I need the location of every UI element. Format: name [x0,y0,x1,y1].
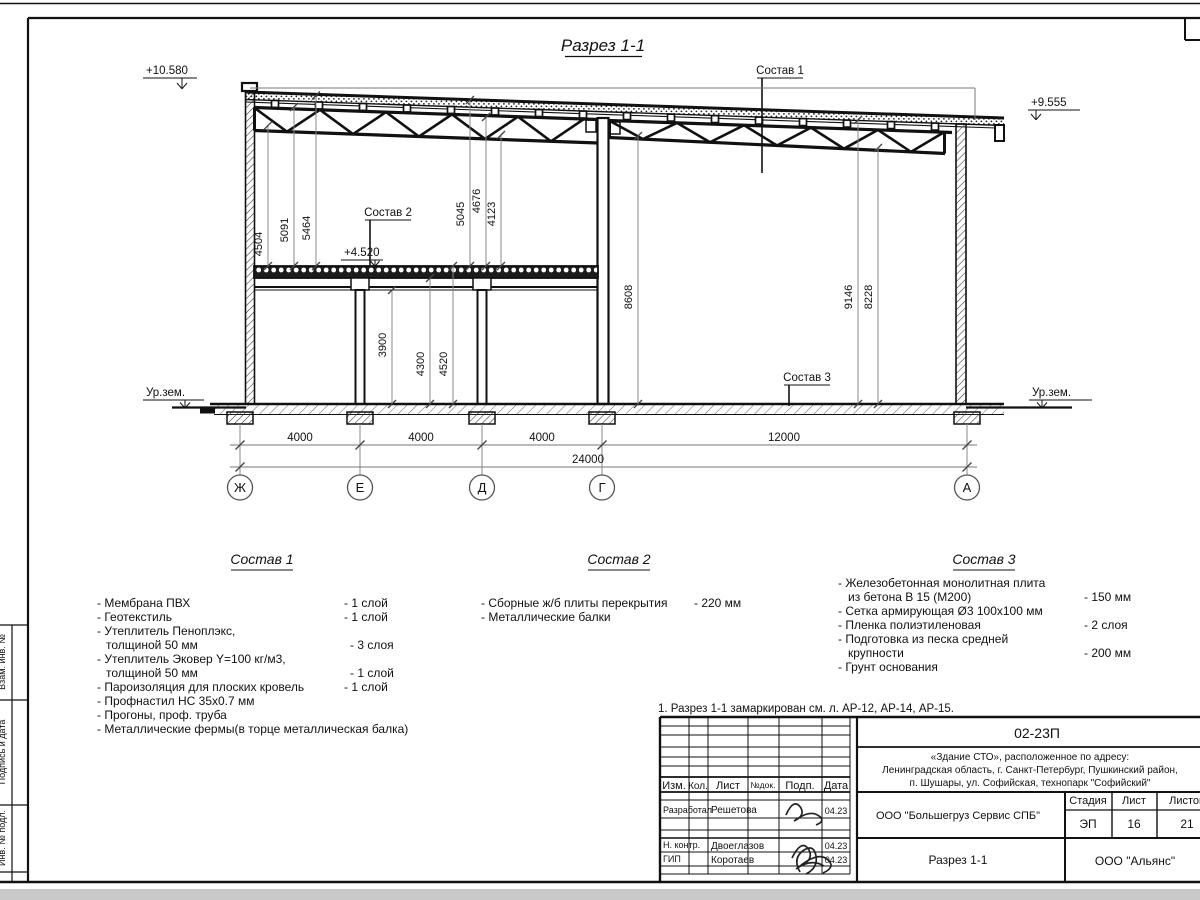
list-value: - 1 слой [344,596,388,610]
dim-9146: 9146 [843,285,855,309]
sostav1-list: Состав 1 - Мембрана ПВХ - 1 слой - Геоте… [97,551,408,736]
floor-slab [172,404,1072,415]
col-list: Лист [716,780,740,792]
list-item: - Геотекстиль [97,610,172,624]
parapet-cap [242,83,257,91]
ground-level-left: Ур.зем. [143,387,204,408]
org-name: ООО "Большегруз Сервис СПБ" [876,810,1040,822]
callout-sostav3: Состав 3 [783,372,831,406]
list-item: - Мембрана ПВХ [97,596,190,610]
role-developer: Разработал [663,805,712,815]
list-value: - 3 слоя [350,638,394,652]
ground-label: Ур.зем. [1032,387,1071,399]
axis-e: Е [356,480,365,495]
section-title: Разрез 1-1 [561,36,645,55]
date-developer: 04.23 [825,806,848,816]
elevation-roof-right: +9.555 [1028,97,1080,120]
doc-title: Разрез 1-1 [929,853,988,867]
elevation-mezzanine: +4.520 [341,247,383,267]
dim-span-2: 4000 [408,432,434,444]
sheets-label: Листов [1169,795,1200,807]
list-title: Состав 3 [952,551,1015,567]
object-line1: «Здание СТО», расположенное по адресу: [931,752,1129,763]
name-gip: Коротаев [711,855,754,866]
drawing-sheet: Взам. инв. № Подпись и дата Инв. № подл.… [0,0,1200,900]
list-item: - Металлические фермы(в торце металличес… [97,722,408,736]
elevation-value: +4.520 [344,247,380,259]
list-value: - 2 слоя [1084,618,1128,632]
list-value: - 220 мм [694,596,741,610]
stage-value: ЭП [1079,817,1096,831]
list-value: - 1 слой [344,680,388,694]
list-item: - Пленка полиэтиленовая [838,618,981,632]
object-line2: Ленинградская область, г. Санкт-Петербур… [882,764,1178,776]
sheet-note: 1. Разрез 1-1 замаркирован см. л. АР-12,… [658,703,954,715]
column-axis-d [478,290,487,404]
dim-total: 24000 [572,454,604,466]
list-item: - Сетка армирующая Ø3 100х100 мм [838,604,1043,618]
dim-span-1: 4000 [287,432,313,444]
dim-4300: 4300 [415,352,427,376]
col-podp: Подп. [785,780,814,792]
list-item: - Сборные ж/б плиты перекрытия [481,596,667,610]
list-item: толщиной 50 мм [106,666,198,680]
middle-column [598,118,609,404]
corner-format-box [1185,18,1200,40]
dim-5464: 5464 [301,216,313,240]
dim-4123: 4123 [486,202,498,226]
list-value: - 150 мм [1084,590,1131,604]
list-title: Состав 1 [230,551,293,567]
sostav3-list: Состав 3 - Железобетонная монолитная пли… [838,551,1131,674]
list-value: - 1 слой [344,610,388,624]
axis-a: А [963,480,972,495]
callout-label: Состав 3 [783,372,831,384]
list-value: - 200 мм [1084,646,1131,660]
column-axis-e [356,290,365,404]
role-ncontrol: Н. контр. [663,840,700,850]
dim-4504: 4504 [253,232,265,256]
sheet-value: 16 [1127,817,1141,831]
role-gip: ГИП [663,854,681,864]
dimension-chain: 4000 4000 4000 12000 24000 Ж Е Д Г А [228,424,980,500]
dim-span-3: 4000 [529,432,555,444]
mezzanine [254,266,598,404]
sidebar-label-inv: Инв. № подл. [0,810,7,866]
sheet-label: Лист [1122,795,1146,807]
mezzanine-slab [254,266,598,278]
right-wall [956,124,966,404]
col-ndok: №док. [751,780,776,790]
section-drawing-svg: Взам. инв. № Подпись и дата Инв. № подл.… [0,0,1200,900]
frame-sidebar: Взам. инв. № Подпись и дата Инв. № подл. [0,625,28,882]
page-edge-shadow [0,889,1200,900]
list-item: - Металлические балки [481,610,611,624]
sheets-value: 21 [1180,817,1194,831]
ground-label: Ур.зем. [146,387,185,399]
title-block: Изм. Кол. Лист №док. Подп. Дата Разработ… [660,717,1200,882]
sidebar-label-vzam: Взам. инв. № [0,634,7,690]
callout-label: Состав 1 [756,65,804,77]
object-line3: п. Шушары, ул. Софийская, технопарк "Соф… [910,777,1151,789]
list-item: - Подготовка из песка средней [838,632,1008,646]
callout-label: Состав 2 [364,207,412,219]
dim-3900: 3900 [377,333,389,357]
sidebar-label-podpis: Подпись и дата [0,720,7,785]
list-item: - Прогоны, проф. труба [97,708,227,722]
dim-span-4: 12000 [768,432,800,444]
elevation-value: +10.580 [146,65,188,77]
axis-zh: Ж [234,480,246,495]
sostav2-list: Состав 2 - Сборные ж/б плиты перекрытия … [481,551,741,624]
dim-8608: 8608 [623,285,635,309]
view-title: Разрез 1-1 [561,36,645,57]
date-ncontrol: 04.23 [825,841,848,851]
list-item: - Железобетонная монолитная плита [838,576,1046,590]
list-item: - Пароизоляция для плоских кровель [97,680,304,694]
list-item: - Утеплитель Пеноплэкс, [97,624,235,638]
list-item: толщиной 50 мм [106,638,198,652]
col-izm: Изм. [662,780,686,792]
building-section [172,83,1072,424]
roof-fascia [995,125,1004,141]
axis-d: Д [478,480,487,495]
list-item: - Профнастил НС 35х0.7 мм [97,694,255,708]
list-title: Состав 2 [587,551,650,567]
ground-level-right: Ур.зем. [1029,387,1092,408]
list-item: - Утеплитель Эковер Y=100 кг/м3, [97,652,286,666]
project-code: 02-23П [1014,725,1060,741]
elevation-roof-left: +10.580 [143,65,197,89]
dim-4520: 4520 [438,352,450,376]
dim-8228: 8228 [863,285,875,309]
name-developer: Решетова [711,805,757,816]
company-name: ООО "Альянс" [1095,854,1175,868]
col-kol: Кол. [688,781,708,792]
stage-label: Стадия [1069,795,1107,807]
col-data: Дата [824,780,849,792]
truss-right-span [609,121,952,154]
dim-5091: 5091 [279,218,291,242]
list-item: крупности [848,646,904,660]
elevation-value: +9.555 [1031,97,1067,109]
list-item: из бетона В 15 (М200) [848,590,971,604]
dim-5045: 5045 [455,202,467,226]
list-value: - 1 слой [350,666,394,680]
name-ncontrol: Двоеглазов [711,841,764,852]
list-item: - Грунт основания [838,660,938,674]
dim-4676: 4676 [471,189,483,213]
axis-g: Г [598,480,605,495]
